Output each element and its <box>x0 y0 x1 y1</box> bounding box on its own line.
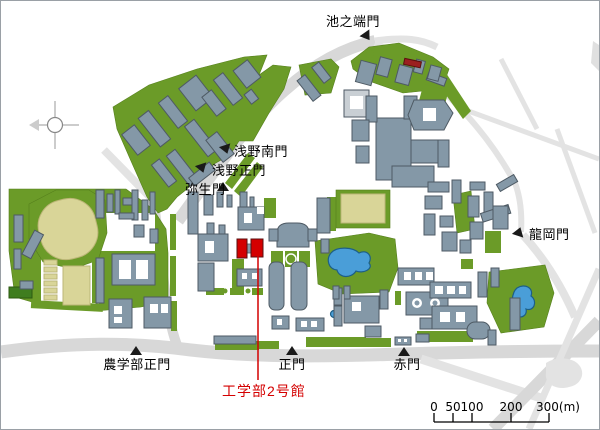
gate-label-akamon: 赤門 <box>393 358 420 372</box>
campus-map: 池之端門 浅野南門 浅野正門 弥生門 龍岡門 農学部正門 正門 赤門 工学部2号… <box>0 0 600 430</box>
scale-label-300: 300(m) <box>536 400 580 414</box>
scale-label-0: 0 <box>430 400 438 414</box>
gate-marker-nogakubu-icon <box>130 346 142 355</box>
gate-marker-akamon-icon <box>398 347 410 356</box>
scale-label-200: 200 <box>500 400 523 414</box>
gate-label-tatsuoka: 龍岡門 <box>529 228 570 242</box>
highlight-label: 工学部2号館 <box>222 384 306 398</box>
gate-label-yayoi: 弥生門 <box>185 183 226 197</box>
gate-label-main: 正門 <box>278 358 305 372</box>
gate-marker-main-icon <box>286 346 298 355</box>
auditorium-building <box>277 223 309 247</box>
gate-label-asano-south: 浅野南門 <box>234 145 288 159</box>
gate-label-nogakubu: 農学部正門 <box>103 358 171 372</box>
compass-icon <box>29 101 79 149</box>
scale-label-100: 100 <box>461 400 484 414</box>
gate-label-ikenohata: 池之端門 <box>326 15 380 29</box>
akamon-gate-structure <box>395 337 411 345</box>
gate-label-asano-main: 浅野正門 <box>212 164 266 178</box>
scale-label-50: 50 <box>445 400 460 414</box>
